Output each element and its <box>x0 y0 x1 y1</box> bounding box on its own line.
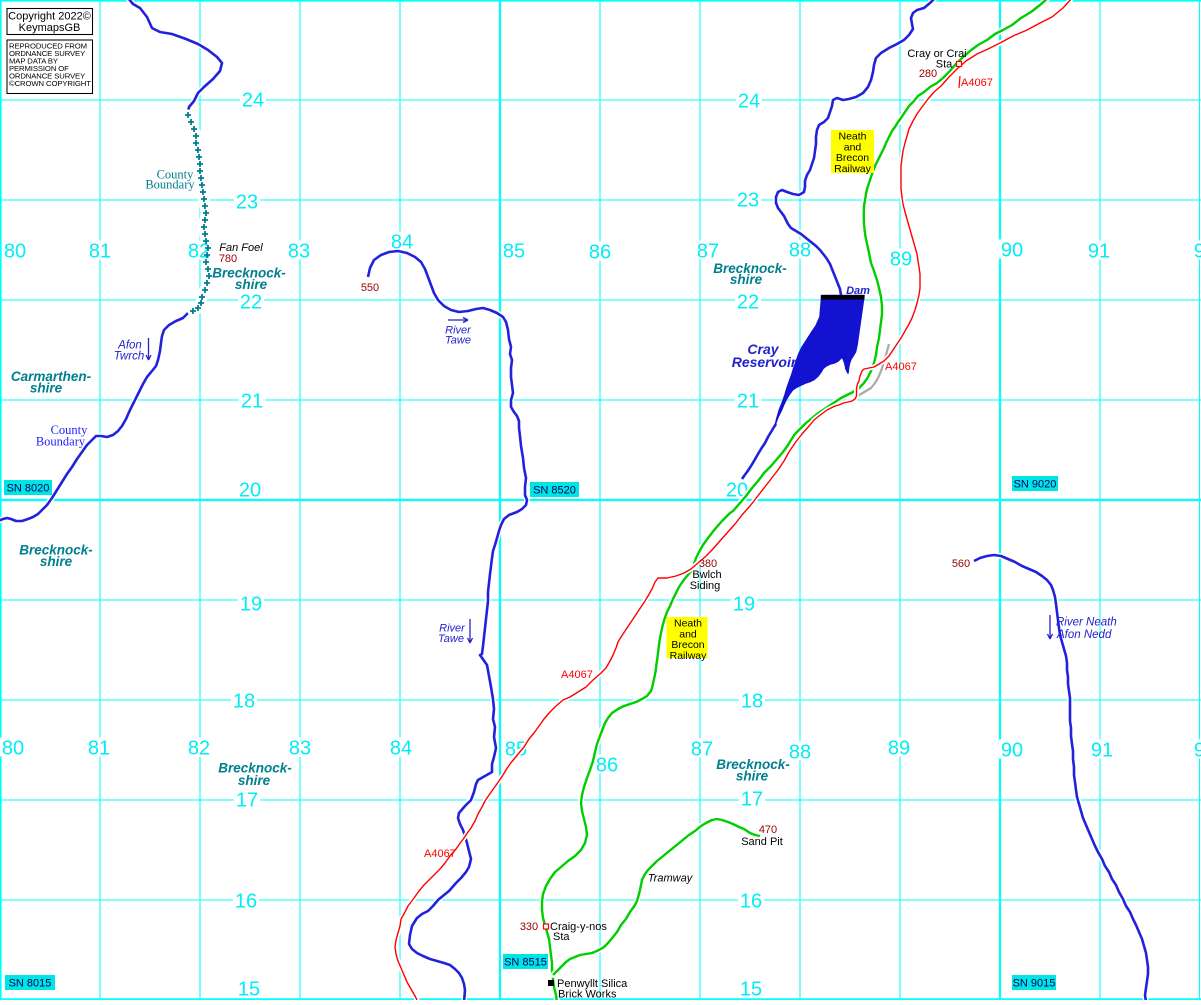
svg-text:Copyright 2022©: Copyright 2022© <box>8 11 91 23</box>
svg-text:23: 23 <box>236 192 258 214</box>
svg-text:SN 8515: SN 8515 <box>504 957 547 969</box>
svg-text:Sta: Sta <box>553 931 570 943</box>
svg-text:87: 87 <box>697 241 719 263</box>
svg-text:Tawe: Tawe <box>438 633 464 645</box>
svg-text:Railway: Railway <box>834 163 872 175</box>
svg-text:470: 470 <box>759 824 777 836</box>
svg-text:84: 84 <box>390 738 412 760</box>
svg-text:shire: shire <box>40 554 73 569</box>
svg-text:92: 92 <box>1194 241 1201 263</box>
svg-text:16: 16 <box>235 891 257 913</box>
svg-text:SN 9015: SN 9015 <box>1013 978 1056 990</box>
svg-text:89: 89 <box>888 738 910 760</box>
svg-text:92: 92 <box>1194 740 1201 762</box>
svg-text:22: 22 <box>737 292 759 314</box>
svg-text:88: 88 <box>789 742 811 764</box>
svg-text:19: 19 <box>733 594 755 616</box>
svg-text:River Neath: River Neath <box>1056 617 1117 629</box>
svg-text:89: 89 <box>890 249 912 271</box>
svg-text:80: 80 <box>4 241 26 263</box>
svg-text:shire: shire <box>30 381 63 396</box>
svg-text:Boundary: Boundary <box>36 435 86 449</box>
svg-text:Tawe: Tawe <box>445 335 471 347</box>
svg-text:16: 16 <box>740 891 762 913</box>
svg-text:82: 82 <box>188 738 210 760</box>
svg-text:Afon Nedd: Afon Nedd <box>1056 629 1112 641</box>
svg-text:80: 80 <box>2 738 24 760</box>
svg-text:91: 91 <box>1091 740 1113 762</box>
svg-text:19: 19 <box>240 594 262 616</box>
svg-text:24: 24 <box>242 90 264 112</box>
svg-text:24: 24 <box>738 91 760 113</box>
svg-text:Sta: Sta <box>936 59 953 71</box>
svg-text:780: 780 <box>219 253 237 265</box>
svg-text:85: 85 <box>503 241 525 263</box>
svg-text:Siding: Siding <box>690 580 721 592</box>
svg-text:15: 15 <box>740 979 762 1001</box>
svg-text:81: 81 <box>88 738 110 760</box>
svg-text:83: 83 <box>288 241 310 263</box>
svg-text:21: 21 <box>241 391 263 413</box>
svg-text:90: 90 <box>1001 240 1023 262</box>
svg-text:550: 550 <box>361 282 379 294</box>
svg-text:A4067: A4067 <box>561 669 593 681</box>
svg-text:330: 330 <box>520 921 538 933</box>
svg-text:A4067: A4067 <box>961 77 993 89</box>
svg-text:280: 280 <box>919 68 937 80</box>
svg-text:Railway: Railway <box>670 650 708 662</box>
svg-text:shire: shire <box>238 773 271 788</box>
svg-text:81: 81 <box>89 241 111 263</box>
svg-text:90: 90 <box>1001 740 1023 762</box>
svg-text:SN 9020: SN 9020 <box>1014 479 1057 491</box>
svg-text:17: 17 <box>741 789 763 811</box>
svg-text:A4067: A4067 <box>885 361 917 373</box>
svg-text:87: 87 <box>691 739 713 761</box>
svg-text:91: 91 <box>1088 241 1110 263</box>
svg-text:86: 86 <box>589 242 611 264</box>
svg-text:©CROWN COPYRIGHT: ©CROWN COPYRIGHT <box>9 79 91 88</box>
svg-text:Tramway: Tramway <box>648 873 694 885</box>
svg-text:Reservoir: Reservoir <box>732 354 798 370</box>
svg-text:Brick Works: Brick Works <box>558 989 617 1001</box>
svg-text:SN 8020: SN 8020 <box>7 483 50 495</box>
svg-text:shire: shire <box>235 277 268 292</box>
svg-text:560: 560 <box>952 558 970 570</box>
svg-text:83: 83 <box>289 738 311 760</box>
svg-text:Dam: Dam <box>846 285 870 297</box>
svg-text:shire: shire <box>736 769 769 784</box>
svg-text:KeymapsGB: KeymapsGB <box>19 22 81 34</box>
svg-text:22: 22 <box>240 292 262 314</box>
svg-text:23: 23 <box>737 190 759 212</box>
svg-text:Boundary: Boundary <box>145 178 195 192</box>
svg-text:A4067: A4067 <box>424 848 456 860</box>
svg-text:SN 8520: SN 8520 <box>533 485 576 497</box>
svg-text:86: 86 <box>596 755 618 777</box>
svg-text:Twrch: Twrch <box>114 351 144 363</box>
svg-text:shire: shire <box>730 272 763 287</box>
svg-text:18: 18 <box>233 691 255 713</box>
svg-text:SN 8015: SN 8015 <box>9 978 52 990</box>
svg-text:17: 17 <box>236 790 258 812</box>
svg-text:21: 21 <box>737 391 759 413</box>
svg-text:18: 18 <box>741 691 763 713</box>
svg-text:20: 20 <box>239 480 261 502</box>
svg-text:Sand Pit: Sand Pit <box>741 836 783 848</box>
svg-text:15: 15 <box>238 979 260 1001</box>
